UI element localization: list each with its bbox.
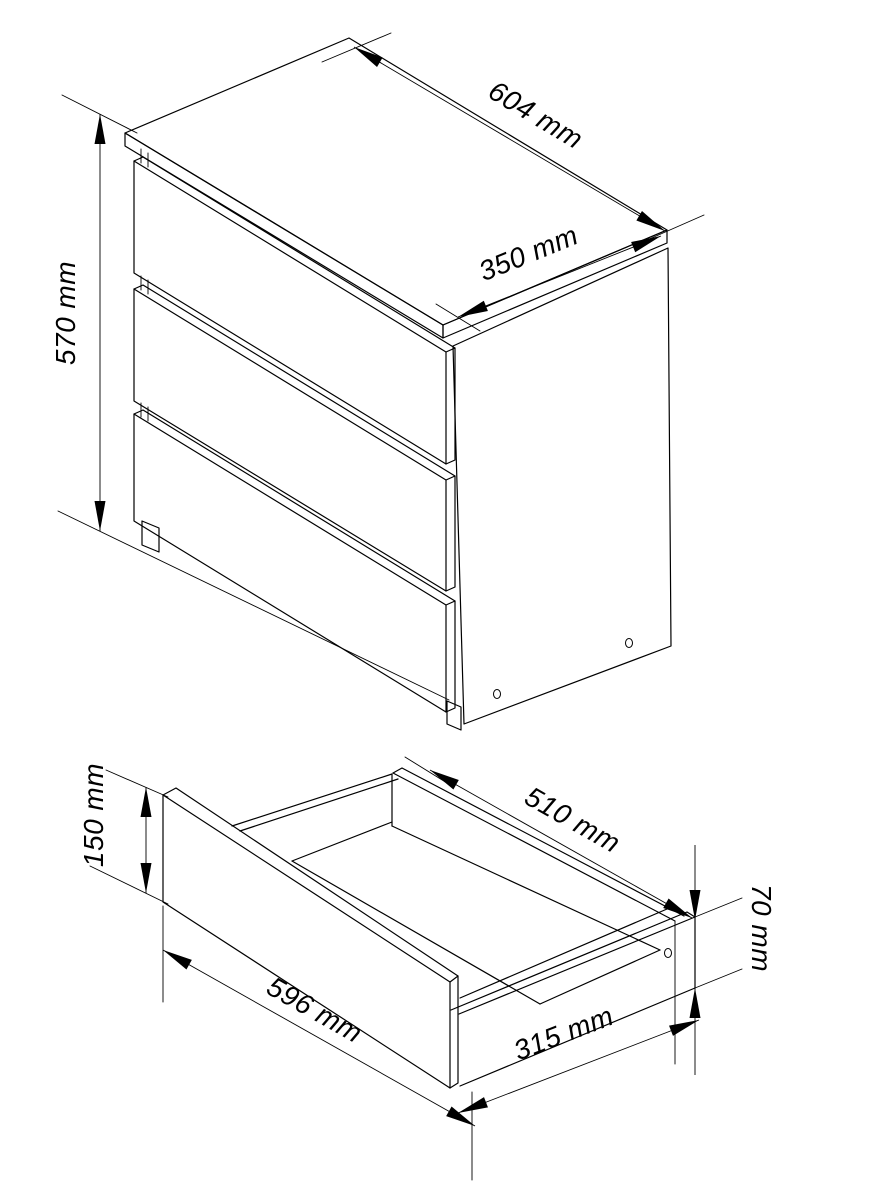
dim-label-depth: 350 mm <box>474 219 582 287</box>
arrowhead <box>141 863 152 893</box>
chest-foot-left <box>142 521 159 552</box>
dimension-drawer-front-height: 150 mm <box>78 763 168 904</box>
arrowhead <box>690 988 701 1018</box>
extension-line <box>106 770 168 797</box>
arrowhead <box>669 1015 701 1036</box>
chest-top-front-edge <box>125 133 443 338</box>
drawer-front-top-edge <box>163 788 458 976</box>
dim-label-width: 604 mm <box>483 75 588 155</box>
arrowhead <box>95 501 106 531</box>
cam-hole-front <box>494 690 501 699</box>
chest-drawer-front-3 <box>134 410 455 712</box>
dim-label-height: 570 mm <box>50 261 81 365</box>
arrowhead <box>427 765 459 789</box>
chest-foot-right <box>447 701 461 730</box>
drawer-side-panel <box>451 898 742 1086</box>
dimension-drawer-side-height: 70 mm <box>690 845 778 1075</box>
technical-drawing-page: 604 mm 350 mm 570 mm <box>0 0 875 1200</box>
extension-line <box>405 757 447 783</box>
drawer-front-right-edge <box>450 976 458 1088</box>
arrowhead <box>141 787 152 817</box>
dimension-line <box>354 47 665 231</box>
dimension-drawer-box-width: 510 mm <box>405 757 695 923</box>
dim-label-side-height: 70 mm <box>746 884 777 972</box>
dim-label-box-width: 510 mm <box>520 781 626 859</box>
arrowhead <box>160 945 192 969</box>
dimension-line <box>163 950 475 1126</box>
chest-isometric-view: 604 mm 350 mm 570 mm <box>50 33 704 730</box>
dimension-chest-height: 570 mm <box>50 95 449 700</box>
arrowhead <box>351 42 382 67</box>
extension-line <box>90 866 168 904</box>
dim-label-box-depth: 315 mm <box>509 1000 617 1066</box>
dimension-line <box>430 770 692 918</box>
dimension-chest-depth: 350 mm <box>436 219 663 331</box>
cam-hole-back <box>626 639 633 648</box>
dimension-drawing: 604 mm 350 mm 570 mm <box>0 0 875 1200</box>
dimension-chest-width: 604 mm <box>322 33 704 244</box>
chest-drawer-front-1 <box>134 157 455 464</box>
side-panel-hole <box>665 949 672 958</box>
dimension-drawer-front-width: 596 mm <box>160 906 477 1180</box>
chest-drawer-front-2 <box>134 285 455 591</box>
dim-label-front-height: 150 mm <box>78 763 109 867</box>
dimension-drawer-box-depth: 315 mm <box>456 1000 701 1118</box>
dim-label-front-width: 596 mm <box>262 971 368 1049</box>
extension-line <box>58 511 449 700</box>
drawer-isometric-view: 150 mm 596 mm 510 mm 315 mm <box>78 757 777 1180</box>
arrowhead <box>95 114 106 144</box>
